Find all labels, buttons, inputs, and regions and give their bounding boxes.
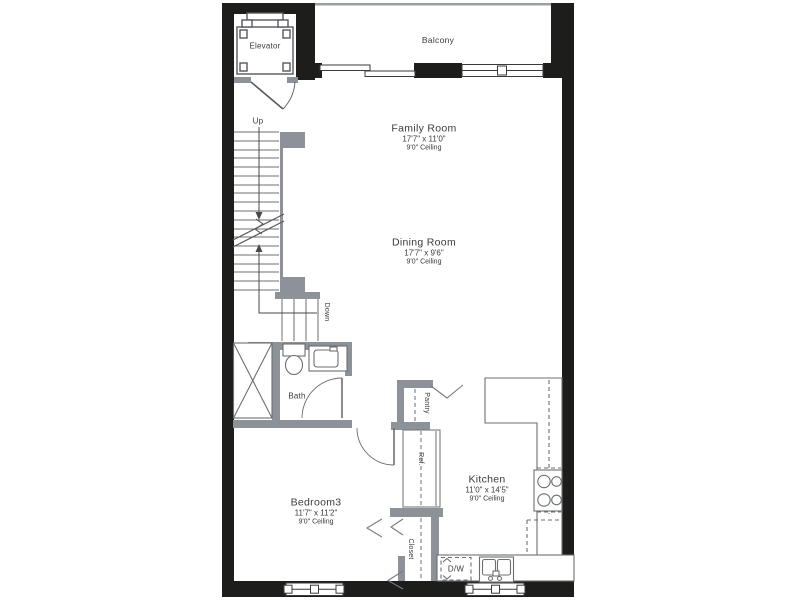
bath-sink: [314, 350, 338, 367]
elevator-sill-left: [234, 77, 251, 83]
window-post: [465, 585, 473, 593]
room-ceiling: 9'0" Ceiling: [392, 259, 456, 268]
door-leaf: [251, 82, 283, 109]
floor-plan-drawing: [0, 0, 800, 600]
bath-wall-bottom: [233, 420, 352, 428]
closet-label: Closet: [406, 538, 414, 559]
bedroom-window: [284, 583, 344, 596]
door-arc: [357, 428, 394, 465]
elevator-door-swing: [251, 82, 295, 109]
stair-break-lines: [233, 214, 284, 247]
wall-left: [222, 3, 234, 597]
family-room-label-block: Family Room 17'7" x 11'0" 9'0" Ceiling: [391, 123, 456, 154]
counter-L: [485, 378, 562, 555]
sink-knob: [498, 577, 502, 581]
room-dimensions: 17'7" x 9'6": [392, 249, 456, 259]
bedroom-door-swing: [357, 428, 394, 465]
bath-label: Bath: [288, 391, 305, 400]
elevator-pad: [283, 63, 290, 71]
dining-room-label-block: Dining Room 17'7" x 9'6" 9'0" Ceiling: [392, 237, 456, 268]
stair-lower-flight-wall: [275, 292, 320, 299]
elevator-sill-right: [287, 77, 298, 83]
room-ceiling: 9'0" Ceiling: [465, 496, 508, 505]
room-ceiling: 9'0" Ceiling: [391, 145, 456, 154]
sliding-door-panel: [365, 71, 415, 77]
window-post: [284, 585, 292, 593]
sliding-door-panel: [320, 65, 370, 71]
stove-burner: [538, 475, 550, 487]
balcony-label: Balcony: [422, 36, 454, 46]
closet-bifold-door: [367, 519, 382, 537]
bath-laundry-divider: [272, 350, 280, 420]
room-ceiling: 9'0" Ceiling: [291, 519, 342, 528]
elevator-door-jamb: [242, 20, 252, 27]
wall-balcony-front-left: [296, 63, 322, 78]
arrow-head-up: [256, 244, 263, 252]
wall-balcony-front-mid: [414, 63, 462, 78]
bedroom3-label-block: Bedroom3 11'7" x 11'2" 9'0" Ceiling: [291, 497, 342, 528]
closet-bifold-door: [391, 519, 403, 535]
window-post: [517, 585, 525, 593]
stair-wall-block-top: [282, 132, 305, 148]
kitchen-window: [465, 583, 525, 596]
closet-wall-stub: [398, 556, 405, 581]
room-dimensions: 17'7" x 11'0": [391, 135, 456, 145]
room-name: Dining Room: [392, 237, 456, 249]
window-post: [311, 585, 319, 593]
kitchen-label-block: Kitchen 11'0" x 14'5" 9'0" Ceiling: [465, 474, 508, 505]
sink-faucet: [493, 571, 499, 576]
bedroom-door-jamb-wall: [391, 422, 430, 430]
stairs-up-label: Up: [253, 116, 264, 125]
bath-door-arc: [302, 378, 342, 418]
balcony-railing: [315, 3, 551, 6]
dishwasher-label: D/W: [448, 564, 464, 573]
elevator-label: Elevator: [250, 41, 281, 50]
bath-fixtures: [234, 343, 348, 418]
door-arc: [283, 82, 295, 109]
stove-burner: [552, 477, 562, 487]
window-post: [336, 585, 344, 593]
balcony-window-post: [498, 66, 507, 75]
bath-faucet: [330, 347, 337, 351]
pantry-bifold-door: [431, 385, 463, 398]
window-post: [492, 585, 500, 593]
stove-burner: [552, 495, 562, 505]
room-dimensions: 11'0" x 14'5": [465, 486, 508, 496]
stair-treads-lower: [282, 299, 318, 341]
toilet-bowl: [286, 356, 303, 375]
stair-treads-upper: [234, 132, 279, 290]
stairs-down-label: Down: [322, 303, 330, 322]
elevator-door-jamb: [278, 20, 288, 27]
elevator-pad: [240, 63, 247, 71]
pantry-wall-top: [397, 380, 433, 388]
stove-burner: [538, 494, 550, 506]
staircase: [234, 132, 318, 341]
floor-plan: Balcony Elevator Up Down Bath Pantry Ref…: [0, 0, 800, 600]
pantry-label: Pantry: [422, 392, 430, 413]
elevator-pad: [283, 30, 290, 38]
wall-right: [562, 3, 574, 597]
toilet-tank: [283, 344, 305, 356]
elevator-door-mech: [247, 13, 283, 20]
room-name: Kitchen: [465, 474, 508, 486]
refrigerator-label: Ref.: [416, 452, 424, 466]
room-name: Bedroom3: [291, 497, 342, 509]
sink-knob: [489, 577, 493, 581]
room-dimensions: 11'7" x 11'2": [291, 509, 342, 519]
exterior-walls: [222, 3, 574, 597]
elevator-pad: [240, 30, 247, 38]
room-name: Family Room: [391, 123, 456, 135]
